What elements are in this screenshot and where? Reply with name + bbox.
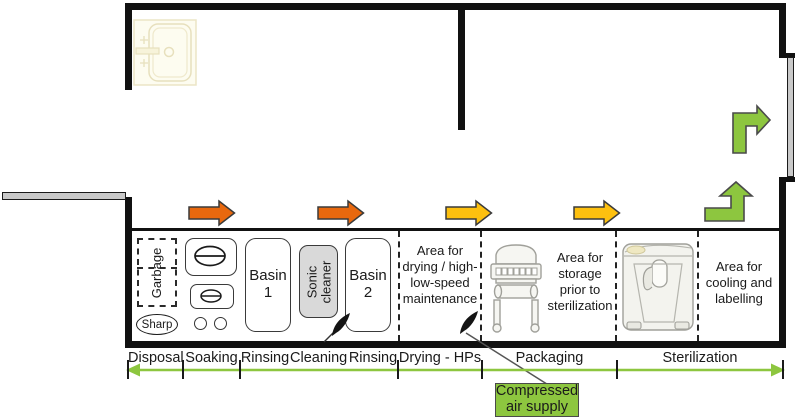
station-sharp: Sharp — [136, 314, 178, 335]
area-storage: Area for storage prior to sterilization — [542, 250, 618, 314]
area-storage-line: prior to — [560, 282, 600, 298]
garbage-label: Garbage — [150, 247, 164, 298]
area-drying-line: Area for — [417, 243, 463, 259]
workbench-top-edge — [132, 228, 779, 231]
room-divider-wall — [458, 10, 465, 130]
sharp-label: Sharp — [142, 319, 173, 331]
flow-arrow-4-right-icon — [573, 199, 621, 227]
soaking-sink-small — [190, 284, 234, 309]
compressed-air-supply-label: Compressed air supply — [495, 383, 579, 417]
station-basin-1: Basin 1 — [245, 238, 291, 332]
compressed-air-line: Compressed — [496, 384, 578, 400]
door-leaf-left-icon — [2, 192, 126, 200]
station-garbage: Garbage — [137, 238, 177, 307]
sink-icon — [133, 19, 197, 86]
sonic-cleaner-label: Sonic cleaner — [305, 251, 332, 313]
area-drying-line: low-speed — [410, 275, 469, 291]
zone-label-rinsing-2: Rinsing — [345, 350, 401, 366]
soaking-knob — [194, 317, 207, 330]
wall-left-upper — [125, 3, 132, 90]
area-cooling-line: Area for — [716, 259, 762, 275]
flow-arrow-2-right-icon — [317, 199, 365, 227]
flow-arrow-3-right-icon — [445, 199, 493, 227]
flow-arrows-turn-icon — [690, 100, 800, 226]
zone-label-drying-hps: Drying - HPs — [398, 350, 482, 366]
zone-label-packaging: Packaging — [482, 350, 617, 366]
zone-label-cleaning: Cleaning — [290, 350, 346, 366]
area-cooling-line: labelling — [715, 291, 763, 307]
wall-top — [125, 3, 786, 10]
compressed-air-line: air supply — [506, 400, 568, 416]
wall-right-upper — [779, 3, 786, 58]
station-sonic-cleaner: Sonic cleaner — [299, 245, 338, 318]
area-cooling-line: cooling and — [706, 275, 773, 291]
area-storage-line: storage — [558, 266, 601, 282]
zone-label-rinsing-1: Rinsing — [238, 350, 292, 366]
flow-arrow-1-right-icon — [188, 199, 236, 227]
arrow-turn-up-icon — [705, 182, 752, 221]
area-drying-line: drying / high- — [402, 259, 477, 275]
zone-label-soaking: Soaking — [183, 350, 240, 366]
soaking-knob — [214, 317, 227, 330]
basin2-label: Basin 2 — [348, 268, 388, 302]
sterilization-unit-floorplan: Garbage Sharp Basin 1 Sonic cleaner Basi… — [0, 0, 800, 419]
area-storage-line: Area for — [557, 250, 603, 266]
air-nozzle-icon — [320, 310, 354, 344]
area-drying: Area for drying / high- low-speed mainte… — [398, 243, 482, 307]
zone-label-sterilization: Sterilization — [617, 350, 783, 366]
arrow-turn-right-icon — [733, 106, 770, 153]
soaking-sink-large — [185, 238, 237, 276]
area-cooling: Area for cooling and labelling — [699, 259, 779, 307]
drain-icon — [191, 285, 232, 307]
zone-label-disposal: Disposal — [128, 350, 183, 366]
sterilizer-machine-icon — [619, 236, 697, 336]
drain-icon — [186, 239, 235, 274]
basin1-label: Basin 1 — [248, 268, 288, 302]
wall-left-lower — [125, 197, 132, 348]
